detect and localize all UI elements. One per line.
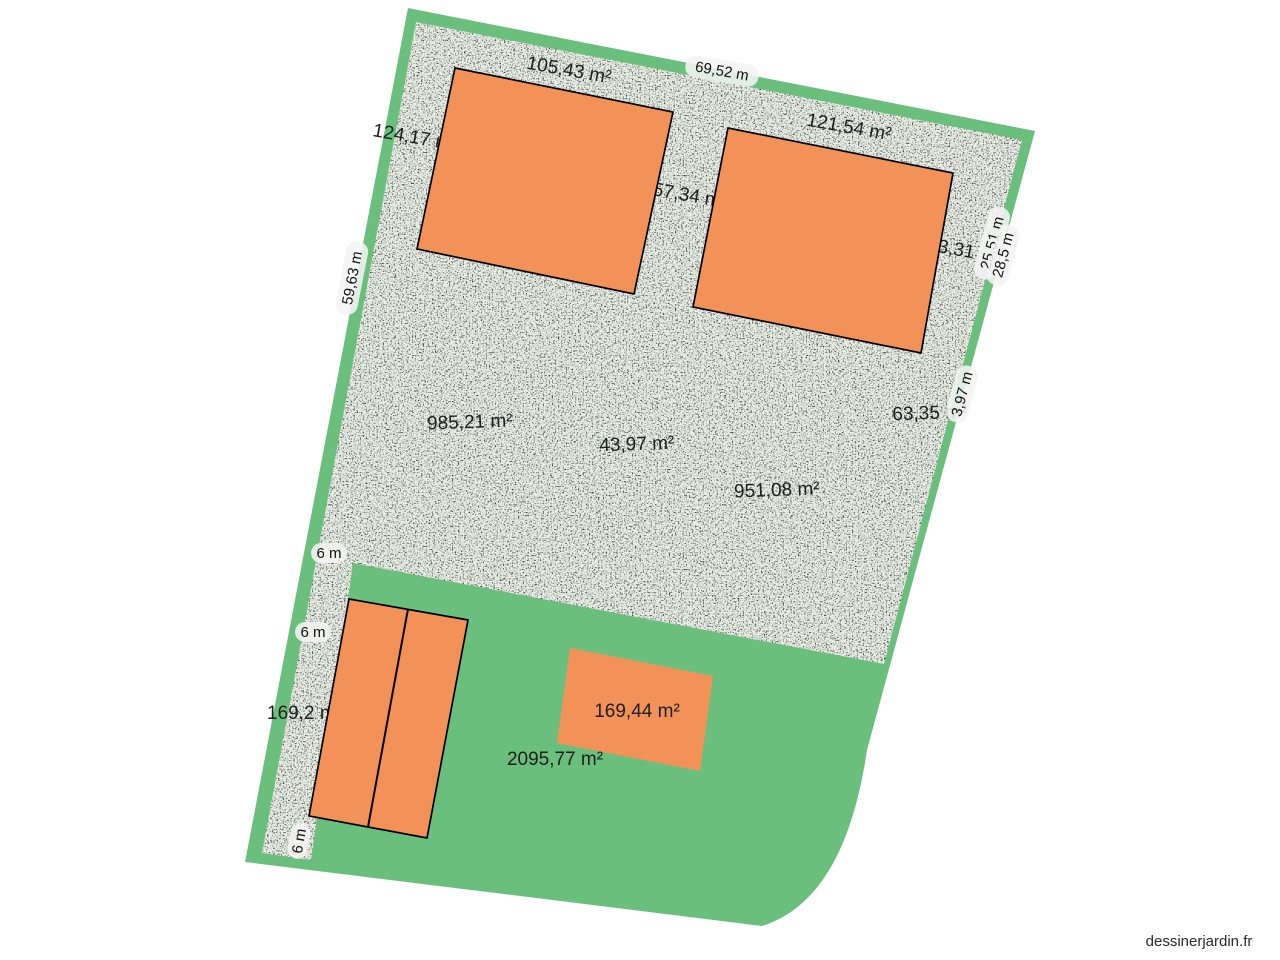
area-label-gravel-center: 43,97 m² <box>599 433 675 457</box>
measure-label-driveway-2: 6 m <box>295 622 331 642</box>
measure-text-driveway-1: 6 m <box>316 545 341 562</box>
area-label-lawn-bottom: 2095,77 m² <box>507 749 603 770</box>
area-label-gravel-center-right: 951,08 m² <box>734 479 820 503</box>
area-label-gravel-center-left: 985,21 m² <box>427 411 513 435</box>
garden-plan-drawing: 124,17 m² 57,34 m 3,31 169,2 m² 13,9 m 1… <box>0 0 1280 960</box>
measure-text-driveway-2: 6 m <box>300 624 325 641</box>
plan-canvas: 124,17 m² 57,34 m 3,31 169,2 m² 13,9 m 1… <box>0 0 1280 960</box>
measure-label-driveway-1: 6 m <box>311 543 347 563</box>
site-watermark: dessinerjardin.fr <box>1146 933 1253 950</box>
area-label-small-building: 169,44 m² <box>594 701 680 722</box>
